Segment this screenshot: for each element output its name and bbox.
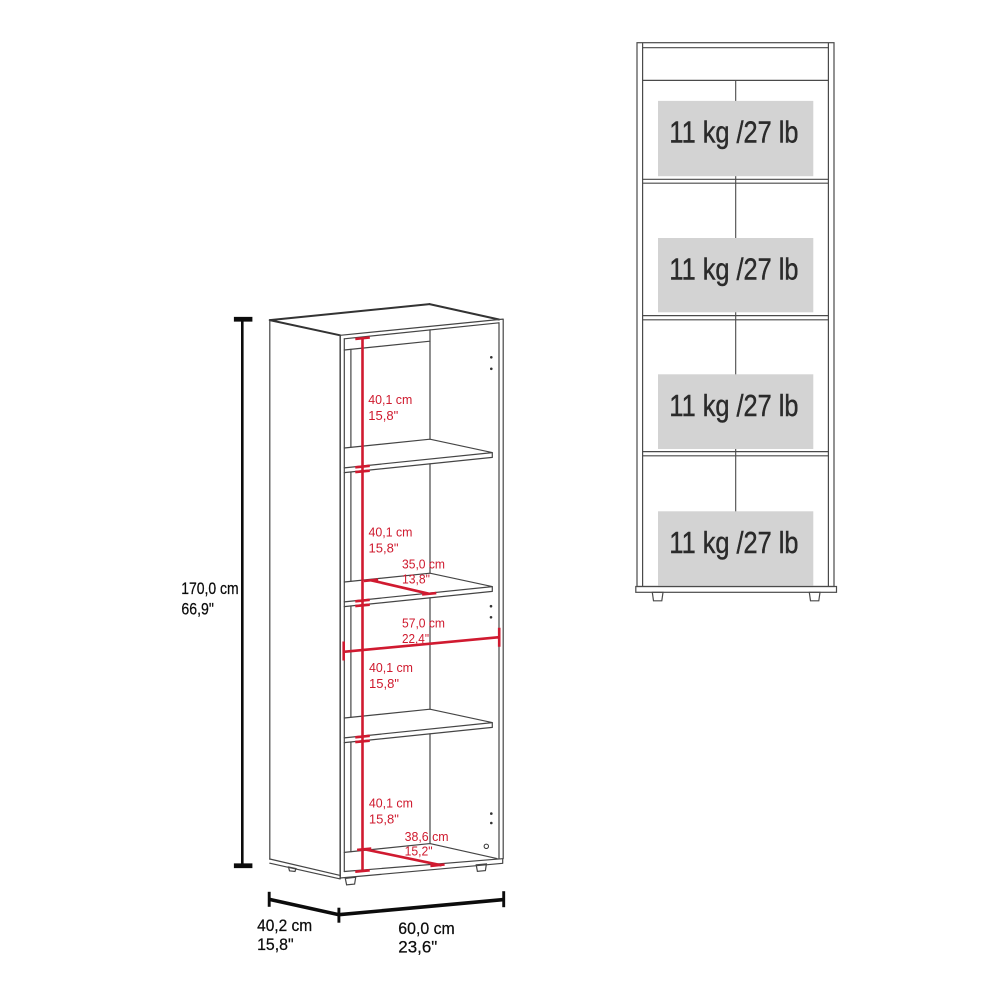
svg-text:40,1 cm: 40,1 cm xyxy=(369,525,413,540)
svg-text:60,0 cm: 60,0 cm xyxy=(398,919,455,938)
svg-text:15,8": 15,8" xyxy=(369,676,399,691)
svg-text:15,2": 15,2" xyxy=(405,844,433,859)
svg-text:15,8": 15,8" xyxy=(369,811,399,826)
svg-text:22,4": 22,4" xyxy=(402,631,429,646)
svg-text:40,1 cm: 40,1 cm xyxy=(368,392,412,407)
svg-text:11 kg /27 lb: 11 kg /27 lb xyxy=(669,525,798,560)
svg-text:40,1 cm: 40,1 cm xyxy=(369,796,413,811)
svg-text:170,0 cm: 170,0 cm xyxy=(181,579,239,598)
svg-text:15,8": 15,8" xyxy=(369,541,399,556)
svg-text:23,6": 23,6" xyxy=(398,937,437,956)
svg-text:13,8": 13,8" xyxy=(402,572,430,587)
svg-text:11 kg /27 lb: 11 kg /27 lb xyxy=(669,388,798,423)
svg-text:11 kg /27 lb: 11 kg /27 lb xyxy=(669,114,798,149)
svg-text:15,8": 15,8" xyxy=(368,408,398,423)
svg-text:11 kg /27 lb: 11 kg /27 lb xyxy=(669,252,798,287)
svg-text:15,8": 15,8" xyxy=(257,935,294,954)
svg-text:38,6 cm: 38,6 cm xyxy=(405,829,449,844)
svg-text:40,1 cm: 40,1 cm xyxy=(369,660,413,675)
svg-text:40,2 cm: 40,2 cm xyxy=(257,916,312,935)
svg-text:66,9": 66,9" xyxy=(181,600,214,619)
svg-text:35,0 cm: 35,0 cm xyxy=(402,557,445,572)
svg-text:57,0 cm: 57,0 cm xyxy=(402,615,445,630)
